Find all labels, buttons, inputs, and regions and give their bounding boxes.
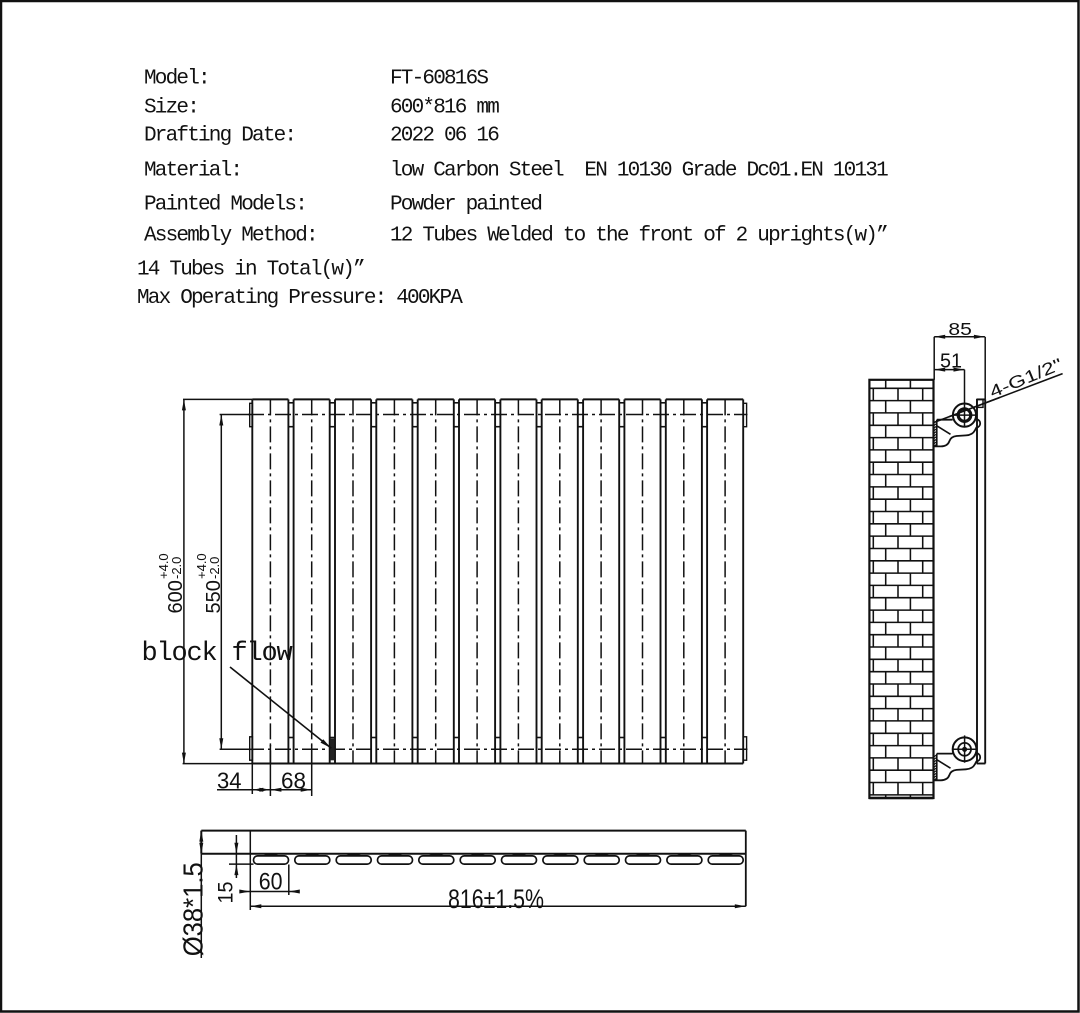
svg-text:Drafting Date:: Drafting Date:	[144, 125, 295, 148]
svg-text:51: 51	[940, 351, 962, 373]
svg-text:4-G1/2": 4-G1/2"	[987, 355, 1065, 402]
svg-text:Painted Models:: Painted Models:	[144, 194, 306, 217]
svg-text:FT-60816S: FT-60816S	[390, 68, 488, 91]
svg-text:85: 85	[948, 319, 972, 339]
svg-text:15: 15	[214, 882, 237, 904]
svg-text:low Carbon Steel EN 10130 Gra: low Carbon Steel EN 10130 Grade Dc01.EN …	[390, 160, 888, 183]
svg-text:816±1.5%: 816±1.5%	[448, 884, 544, 914]
svg-text:Material:: Material:	[144, 160, 241, 183]
svg-text:Ø38*1.5: Ø38*1.5	[178, 862, 209, 956]
svg-text:-2.0: -2.0	[169, 557, 184, 579]
svg-text:Assembly Method:: Assembly Method:	[144, 225, 317, 248]
svg-text:12 Tubes Welded to the front o: 12 Tubes Welded to the front of 2 uprigh…	[390, 225, 887, 248]
svg-text:34: 34	[217, 768, 242, 794]
svg-text:600: 600	[165, 580, 187, 613]
svg-text:Model:: Model:	[144, 68, 209, 91]
svg-text:Max Operating Pressure: 400KPA: Max Operating Pressure: 400KPA	[137, 287, 463, 310]
svg-text:-2.0: -2.0	[207, 557, 222, 579]
svg-text:60: 60	[259, 869, 283, 896]
svg-text:Size:: Size:	[144, 97, 198, 120]
svg-text:2022 06 16: 2022 06 16	[390, 125, 499, 148]
svg-text:14 Tubes in Total(w)”: 14 Tubes in Total(w)”	[137, 259, 364, 282]
svg-text:550: 550	[203, 580, 225, 613]
svg-text:600*816 mm: 600*816 mm	[390, 97, 499, 120]
svg-text:block flow: block flow	[142, 639, 293, 669]
svg-text:Powder painted: Powder painted	[390, 194, 541, 217]
svg-text:68: 68	[281, 768, 306, 794]
